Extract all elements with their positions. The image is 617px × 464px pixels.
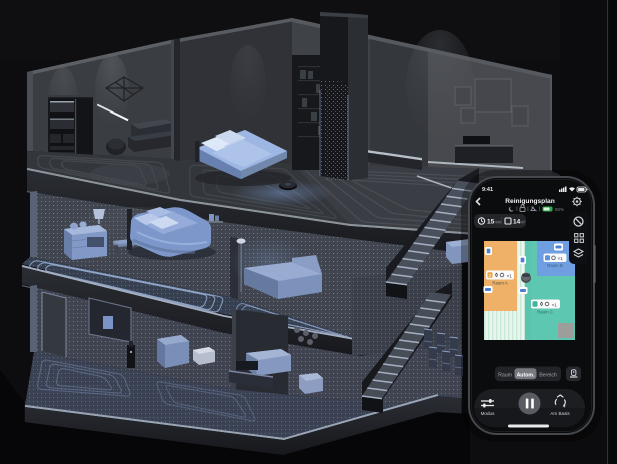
svg-text:14: 14 — [513, 219, 521, 226]
svg-text:Am Basis: Am Basis — [550, 411, 570, 416]
svg-text:Modus: Modus — [481, 411, 495, 416]
svg-text:Raum: Raum — [498, 373, 512, 379]
svg-text:80%: 80% — [555, 207, 564, 212]
svg-text:m²: m² — [521, 220, 526, 225]
svg-text:9:41: 9:41 — [482, 187, 493, 193]
svg-text:Bereich: Bereich — [539, 373, 557, 379]
svg-text:Raum B: Raum B — [547, 263, 563, 268]
svg-text:×1: ×1 — [507, 273, 513, 279]
svg-text:min: min — [495, 220, 502, 225]
svg-text:Raum C: Raum C — [537, 310, 553, 315]
svg-text:×1: ×1 — [558, 256, 564, 262]
svg-text:Raum A: Raum A — [492, 281, 507, 286]
svg-text:15: 15 — [487, 219, 495, 226]
svg-text:Autom.: Autom. — [517, 373, 535, 379]
svg-text:Reinigungsplan: Reinigungsplan — [505, 198, 554, 205]
svg-text:×1: ×1 — [552, 302, 558, 308]
